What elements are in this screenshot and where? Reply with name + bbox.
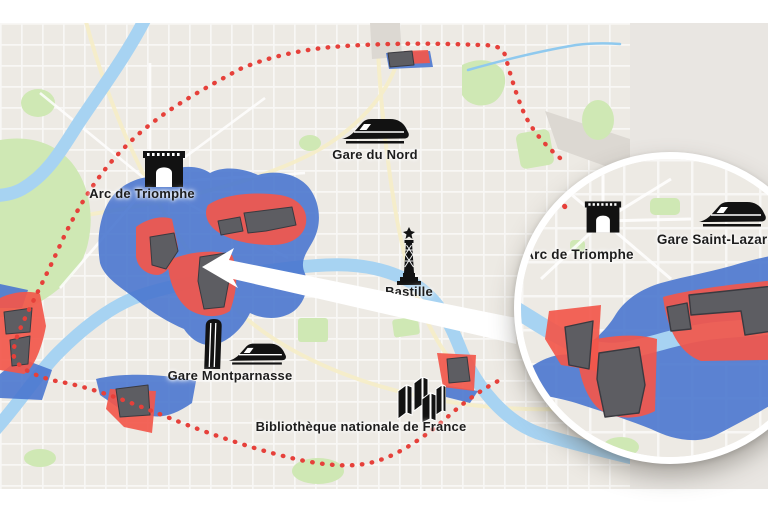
inset-label-gare-saint-lazare: Gare Saint-Lazare [649,232,768,247]
label-gare-montparnasse: Gare Montparnasse [145,368,315,383]
inset-label-arc-de-triomphe: Arc de Triomphe [519,247,639,262]
triumphal-arch-icon [142,151,186,187]
bnf-towers-icon [396,377,446,423]
july-column-icon [394,227,424,287]
train-icon [227,339,287,367]
label-arc-de-triomphe: Arc de Triomphe [60,186,224,201]
triumphal-arch-icon [584,201,622,233]
train-icon [697,197,767,229]
label-gare-du-nord: Gare du Nord [295,147,455,162]
label-bnf: Bibliothèque nationale de France [208,419,514,434]
paris-map-figure: Gare du Nord Arc de Triomphe Bastille Ga… [0,0,768,512]
label-bastille: Bastille [334,284,484,299]
montparnasse-tower-icon [201,317,227,369]
train-icon [340,115,410,145]
magnifier-inset: Arc de Triomphe Gare Saint-Lazare [514,152,768,464]
